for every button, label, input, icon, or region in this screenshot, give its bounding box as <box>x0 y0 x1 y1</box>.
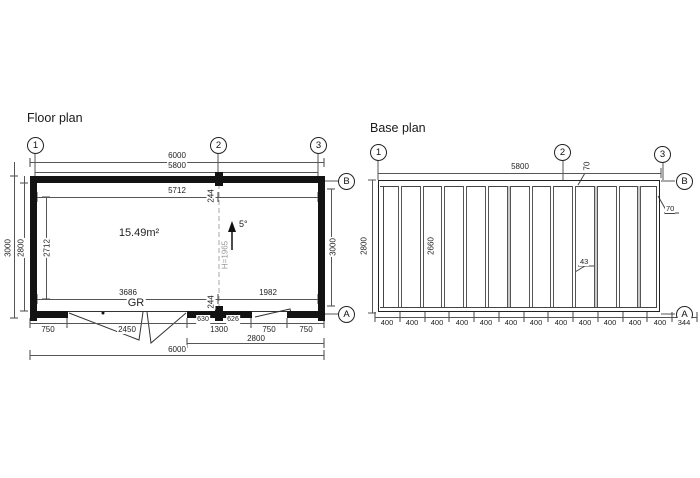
base-spacing-6: 400 <box>504 318 519 327</box>
base-plan-title: Base plan <box>370 121 426 135</box>
joist <box>420 186 424 307</box>
base-grid-circle-1: 1 <box>370 144 387 161</box>
grid-circle-1-label: 1 <box>33 140 38 151</box>
floor-plan-title: Floor plan <box>27 111 83 125</box>
joist <box>441 186 445 307</box>
dim-626: 626 <box>226 315 240 324</box>
partition-log-end-top <box>215 172 223 186</box>
dim-244-top: 244 <box>207 188 216 203</box>
base-grid-circle-2-label: 2 <box>560 147 565 158</box>
dim-1300: 1300 <box>209 325 229 334</box>
room-area-label: 15.49m² <box>118 229 160 238</box>
door-height-label: H=1965 <box>221 240 230 270</box>
joist <box>463 186 467 307</box>
dim-630: 630 <box>196 315 210 324</box>
dim-244-bottom: 244 <box>207 294 216 309</box>
floor-dim-line-3000-left <box>14 162 15 318</box>
floor-dim-line-5712 <box>37 197 318 198</box>
dim-3000-right: 3000 <box>329 237 338 257</box>
base-spacing-4: 400 <box>455 318 470 327</box>
wall-right <box>318 176 325 321</box>
dim-3686: 3686 <box>118 288 138 297</box>
dim-2712: 2712 <box>43 238 52 258</box>
wall-bottom-segment-1 <box>30 311 68 318</box>
dim-1982: 1982 <box>258 288 278 297</box>
base-grid-circle-B: B <box>676 173 693 190</box>
base-dim-line-5800 <box>378 173 661 174</box>
base-dim-70-top: 70 <box>583 161 592 172</box>
base-spacing-13: 344 <box>677 318 692 327</box>
dim-2800-left: 2800 <box>17 238 26 258</box>
grid-circle-3: 3 <box>310 137 327 154</box>
joist <box>485 186 489 307</box>
grid-circle-A-label: A <box>343 309 349 320</box>
dim-3000-left: 3000 <box>4 238 13 258</box>
base-dim-2800: 2800 <box>360 236 369 256</box>
base-spacing-5: 400 <box>479 318 494 327</box>
base-dim-43: 43 <box>579 257 589 266</box>
wall-bottom-segment-3 <box>287 311 324 318</box>
base-spacing-7: 400 <box>529 318 544 327</box>
base-dim-line-2800 <box>372 180 373 313</box>
joist <box>529 186 533 307</box>
grid-circle-3-label: 3 <box>316 140 321 151</box>
dim-750-2: 750 <box>261 325 276 334</box>
base-spacing-3: 400 <box>430 318 445 327</box>
joist <box>507 186 511 307</box>
dim-5712: 5712 <box>167 186 187 195</box>
joist <box>572 186 576 307</box>
base-spacing-11: 400 <box>628 318 643 327</box>
base-rim-bottom-inner <box>380 307 657 308</box>
dim-5800: 5800 <box>167 161 187 170</box>
partition-log-end-bottom <box>215 306 223 321</box>
dim-750-1: 750 <box>40 325 55 334</box>
joist <box>398 186 402 307</box>
base-grid-circle-B-label: B <box>681 176 687 187</box>
base-spacing-8: 400 <box>554 318 569 327</box>
base-grid-circle-2: 2 <box>554 144 571 161</box>
grid-circle-B: B <box>338 173 355 190</box>
grid-circle-A: A <box>338 306 355 323</box>
joist <box>594 186 598 307</box>
base-rim-left-inner <box>383 186 384 307</box>
dim-6000-top: 6000 <box>167 151 187 160</box>
base-spacing-1: 400 <box>380 318 395 327</box>
floor-dim-line-interior <box>37 299 318 300</box>
roof-slope-label: 5° <box>238 220 249 229</box>
wall-left <box>30 176 37 321</box>
dim-2450: 2450 <box>117 325 137 334</box>
joist <box>550 186 554 307</box>
base-spacing-10: 400 <box>603 318 618 327</box>
base-spacing-12: 400 <box>653 318 668 327</box>
dim-6000-bottom: 6000 <box>167 345 187 354</box>
floor-dim-line-5800 <box>35 172 318 173</box>
base-dim-5800: 5800 <box>510 162 530 171</box>
door-gr-label: GR <box>127 299 146 308</box>
wall-top <box>30 176 324 183</box>
base-rim-right-inner <box>656 186 657 307</box>
grid-circle-B-label: B <box>343 176 349 187</box>
floor-dim-line-2800 <box>187 343 324 344</box>
floor-dim-line-6000-bottom <box>30 355 324 356</box>
grid-circle-1: 1 <box>27 137 44 154</box>
base-grid-circle-3: 3 <box>654 146 671 163</box>
floor-dim-line-row1 <box>30 323 324 324</box>
architectural-drawing: Floor plan 1 2 3 B A 6000 5800 5712 15.4… <box>0 0 700 478</box>
dim-2800-bottom: 2800 <box>246 334 266 343</box>
base-dim-70-right: 70 <box>665 204 675 214</box>
base-grid-circle-3-label: 3 <box>660 149 665 160</box>
grid-circle-2-label: 2 <box>216 140 221 151</box>
joist <box>637 186 641 307</box>
joist <box>616 186 620 307</box>
grid-circle-2: 2 <box>210 137 227 154</box>
slope-arrow-head <box>228 221 236 232</box>
floor-threshold-line <box>30 311 324 312</box>
base-spacing-2: 400 <box>405 318 420 327</box>
dim-750-3: 750 <box>298 325 313 334</box>
base-grid-circle-1-label: 1 <box>376 147 381 158</box>
base-spacing-9: 400 <box>578 318 593 327</box>
base-dim-2660: 2660 <box>427 236 436 256</box>
